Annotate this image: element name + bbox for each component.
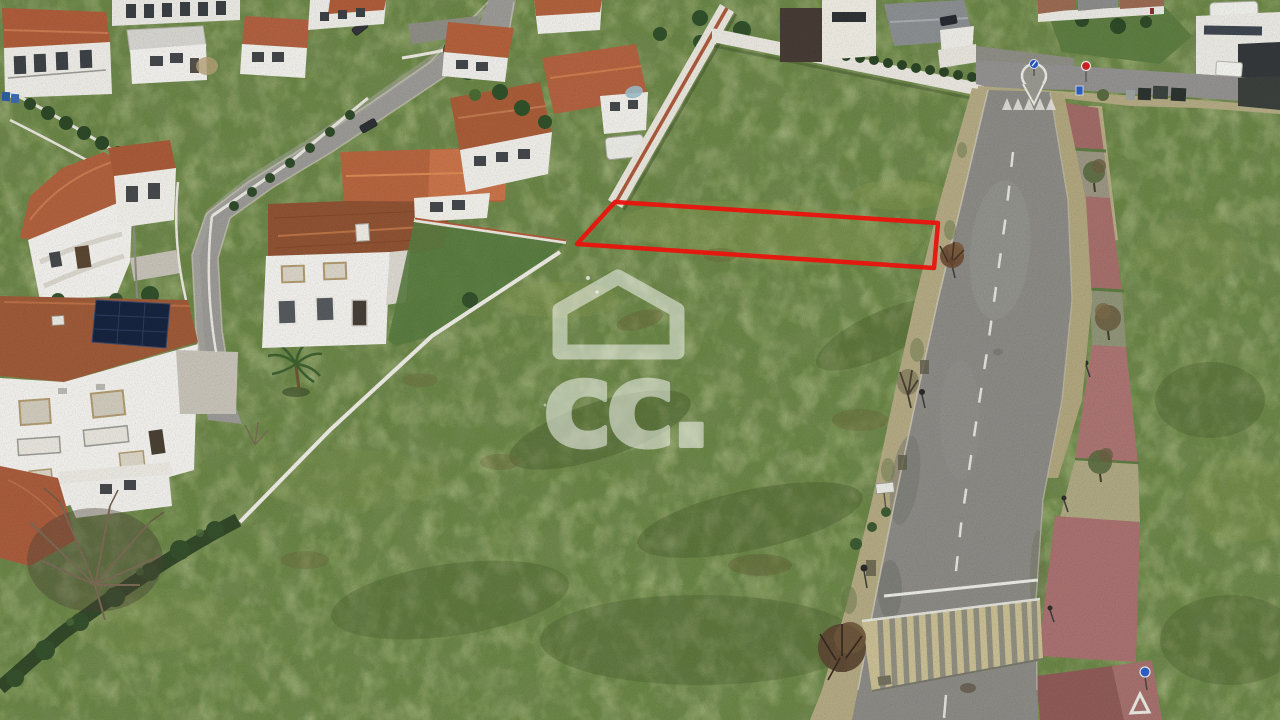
- aerial-photo: cc.: [0, 0, 1280, 720]
- watermark-text: cc.: [543, 336, 707, 474]
- aerial-photo-stage: cc.: [0, 0, 1280, 720]
